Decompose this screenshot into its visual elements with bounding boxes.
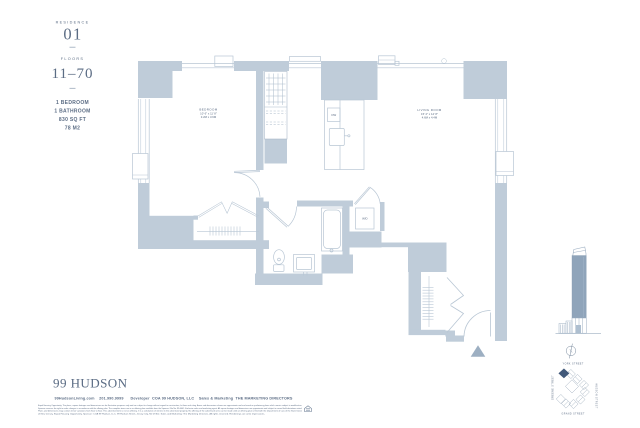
svg-text:GREENE STREET: GREENE STREET <box>552 375 554 400</box>
svg-text:GRAND STREET: GRAND STREET <box>561 413 585 416</box>
svg-text:1 BEDROOM: 1 BEDROOM <box>56 100 89 106</box>
svg-text:830 SQ FT: 830 SQ FT <box>59 117 86 123</box>
svg-text:DW: DW <box>331 113 336 117</box>
svg-text:99 HUDSON: 99 HUDSON <box>53 376 128 390</box>
svg-text:Equal Housing Opportunity. The: Equal Housing Opportunity. The plans, sq… <box>38 404 302 407</box>
svg-text:YORK STREET: YORK STREET <box>563 364 584 366</box>
svg-text:99HudsonLiving.com 201.990.: 99HudsonLiving.com 201.990.9999 Develope… <box>55 396 294 400</box>
svg-text:78 M2: 78 M2 <box>65 126 80 132</box>
svg-text:FLOORS: FLOORS <box>61 57 84 61</box>
svg-text:W/D: W/D <box>362 217 367 221</box>
svg-text:1 BATHROOM: 1 BATHROOM <box>54 109 90 115</box>
svg-text:HUDSON STREET: HUDSON STREET <box>595 383 597 409</box>
svg-text:Plans and dimensions may conta: Plans and dimensions may contain minor v… <box>38 410 302 413</box>
svg-text:of New Jersey. Equal Housing O: of New Jersey. Equal Housing Opportunity… <box>38 412 265 415</box>
svg-text:11–70: 11–70 <box>52 66 94 82</box>
svg-text:4.6M x 4.4M: 4.6M x 4.4M <box>422 116 438 120</box>
svg-text:3.2M x 3.6M: 3.2M x 3.6M <box>201 115 217 119</box>
svg-text:Sponsor reserves the right to: Sponsor reserves the right to make chang… <box>38 407 302 410</box>
svg-text:01: 01 <box>63 25 82 44</box>
